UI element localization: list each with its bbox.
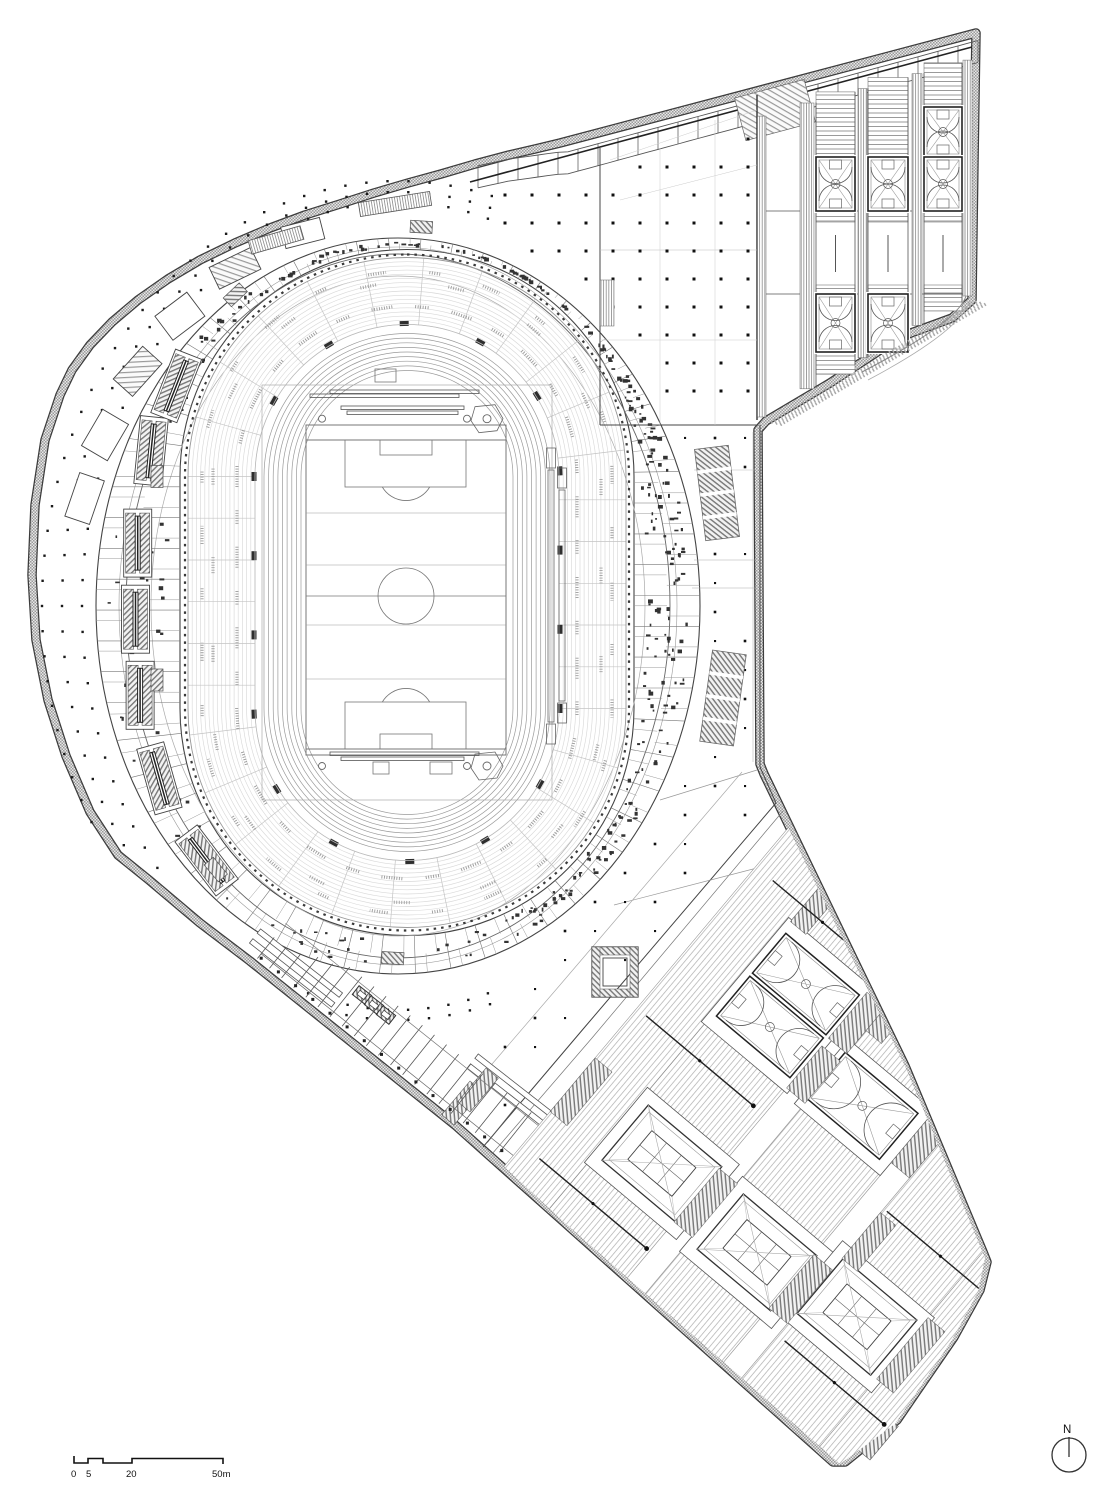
svg-text:50m: 50m: [212, 1469, 231, 1480]
svg-text:0: 0: [71, 1469, 76, 1480]
svg-text:20: 20: [126, 1469, 137, 1480]
svg-text:5: 5: [86, 1469, 91, 1480]
svg-text:N: N: [1063, 1424, 1071, 1436]
